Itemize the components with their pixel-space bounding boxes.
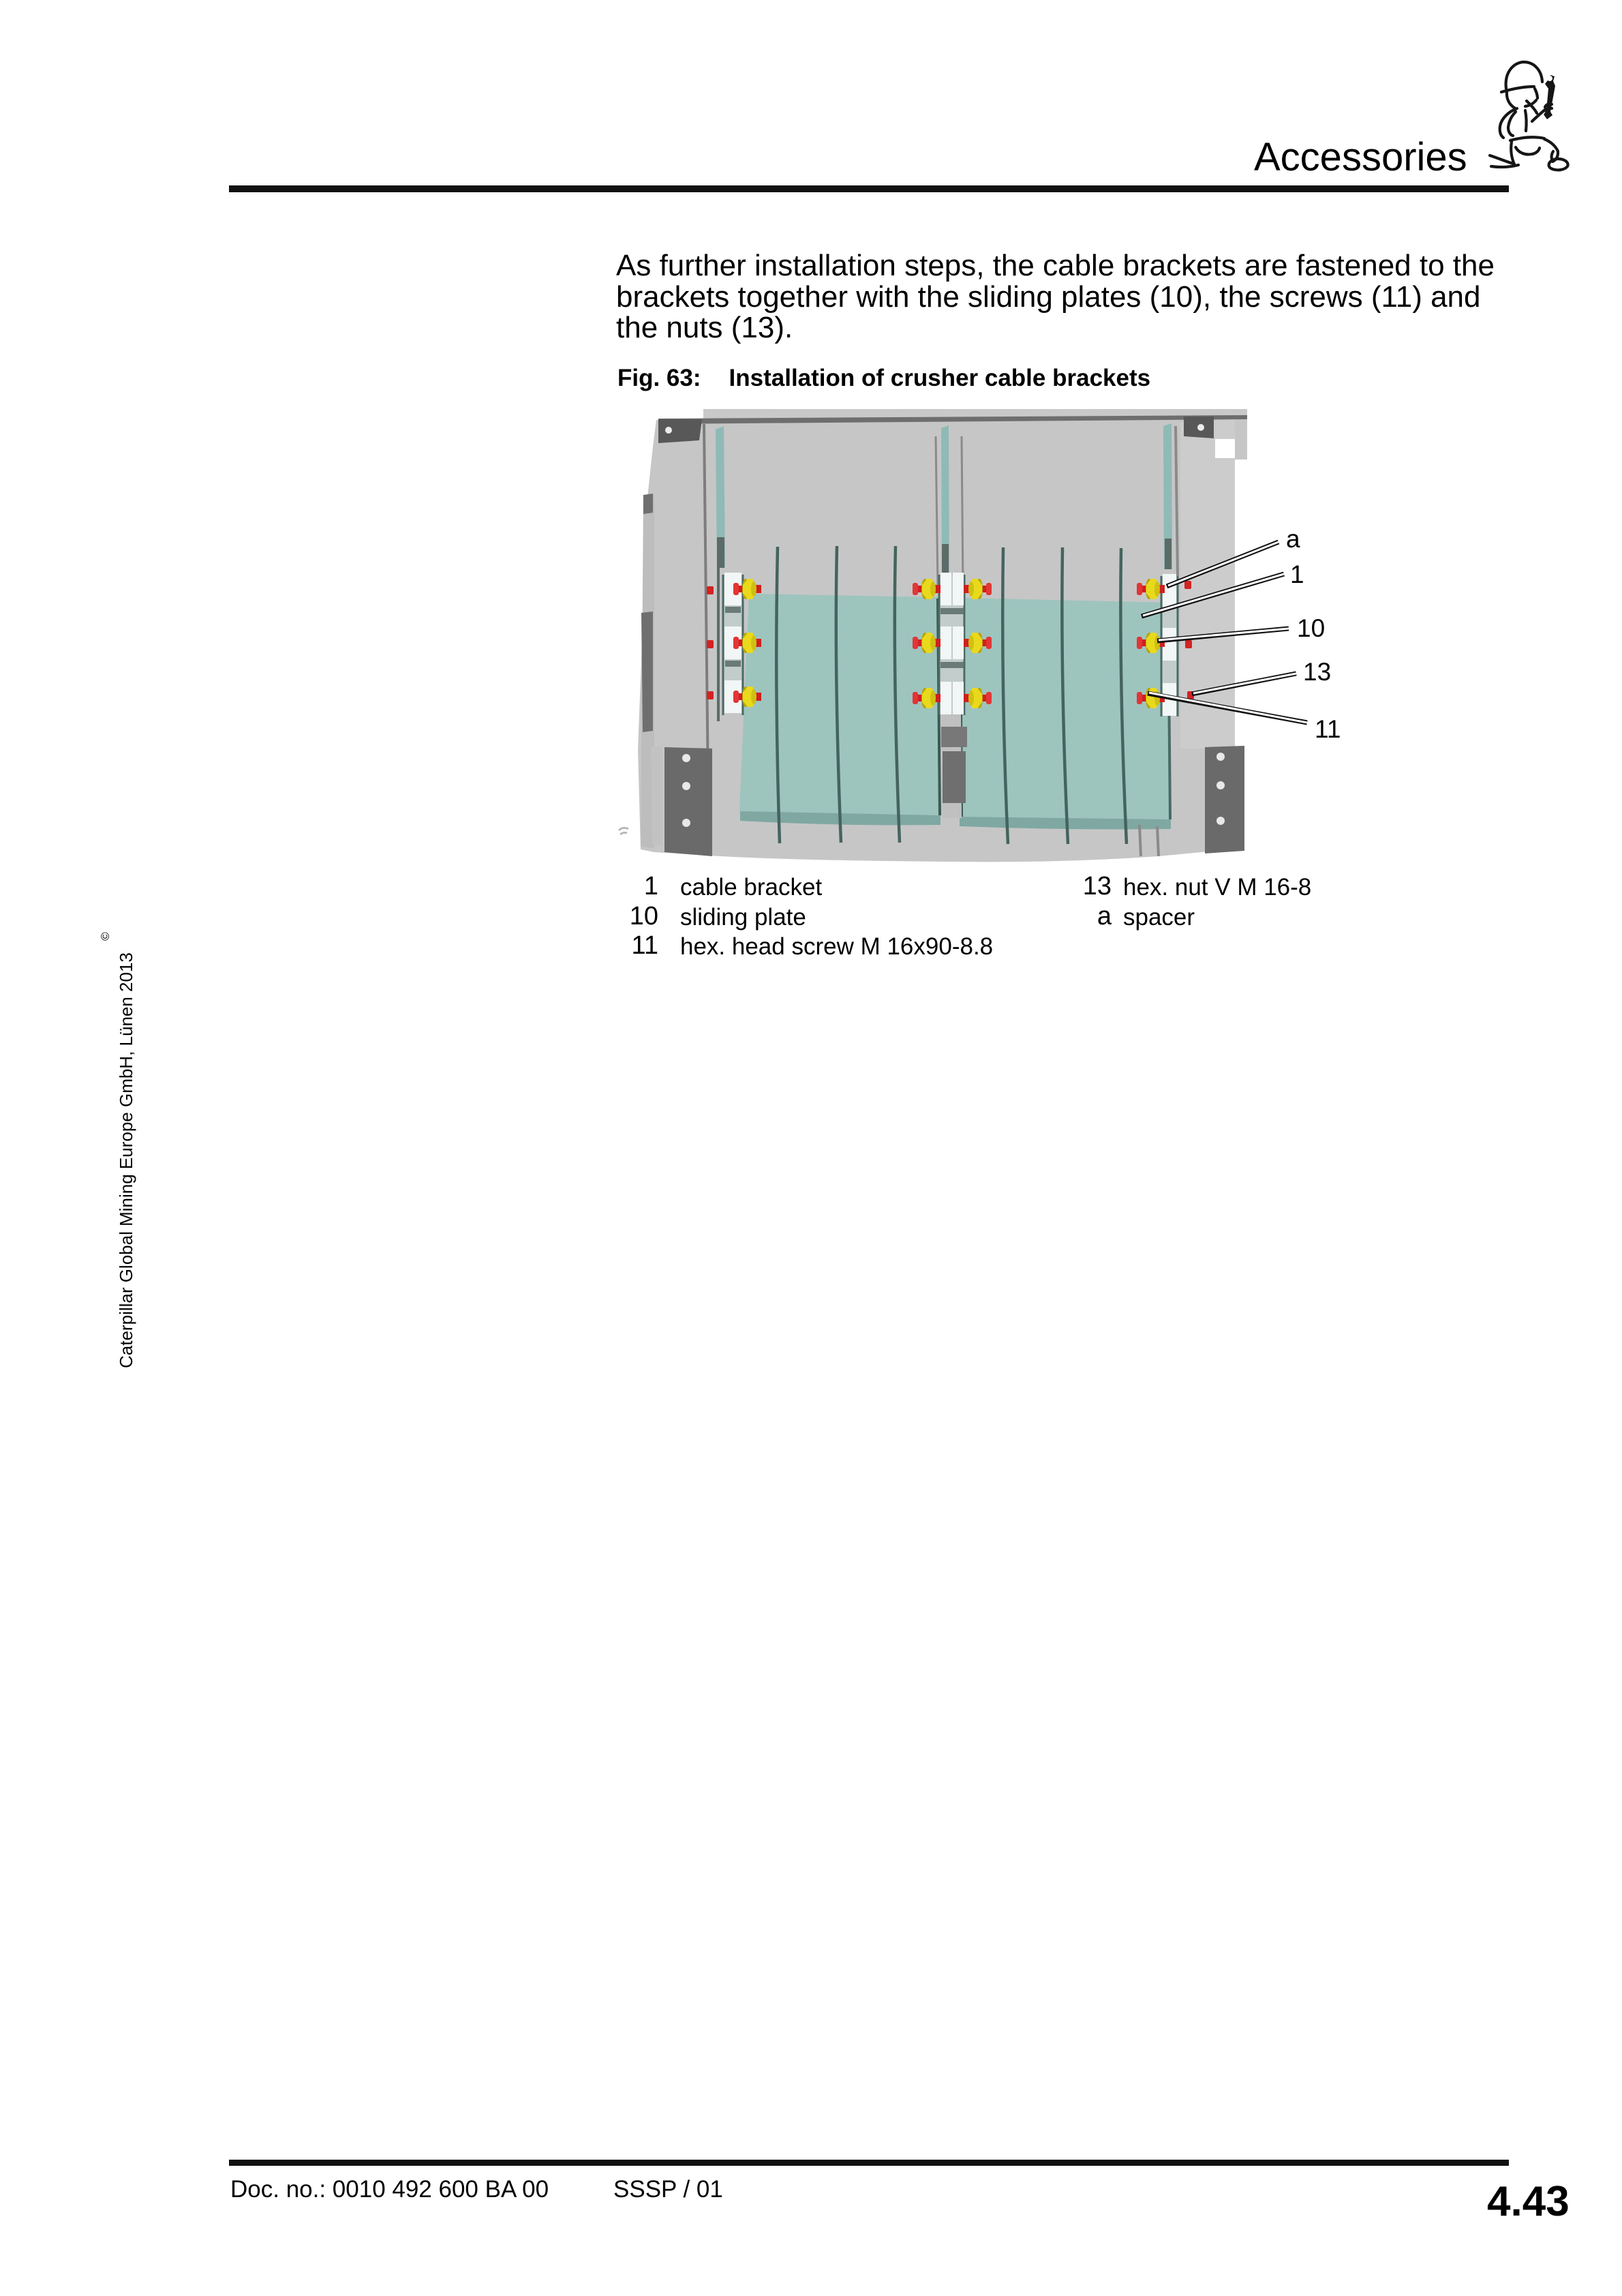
svg-text:11: 11	[1315, 715, 1341, 743]
svg-text:13: 13	[1303, 658, 1331, 686]
svg-text:a: a	[1286, 525, 1300, 553]
svg-text:1: 1	[1290, 560, 1304, 588]
svg-text:10: 10	[1297, 614, 1325, 642]
